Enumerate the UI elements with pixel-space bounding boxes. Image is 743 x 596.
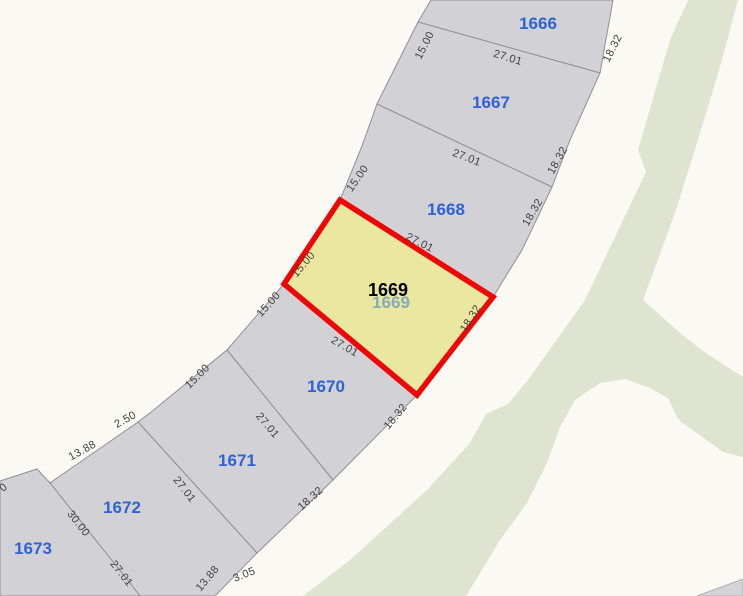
selected-parcel-label: 1669 [368,280,408,300]
parcel-label-1672: 1672 [103,498,141,517]
parcel-map-svg: 15.0027.0118.3227.0118.3215.0027.0118.32… [0,0,743,596]
parcel-label-1673: 1673 [14,539,52,558]
parcel-map-viewport: 15.0027.0118.3227.0118.3215.0027.0118.32… [0,0,743,596]
parcel-label-1671: 1671 [218,451,256,470]
parcel-label-1668: 1668 [427,200,465,219]
parcel-label-1667: 1667 [472,93,510,112]
parcel-label-1666: 1666 [519,14,557,33]
parcel-label-1670: 1670 [307,377,345,396]
